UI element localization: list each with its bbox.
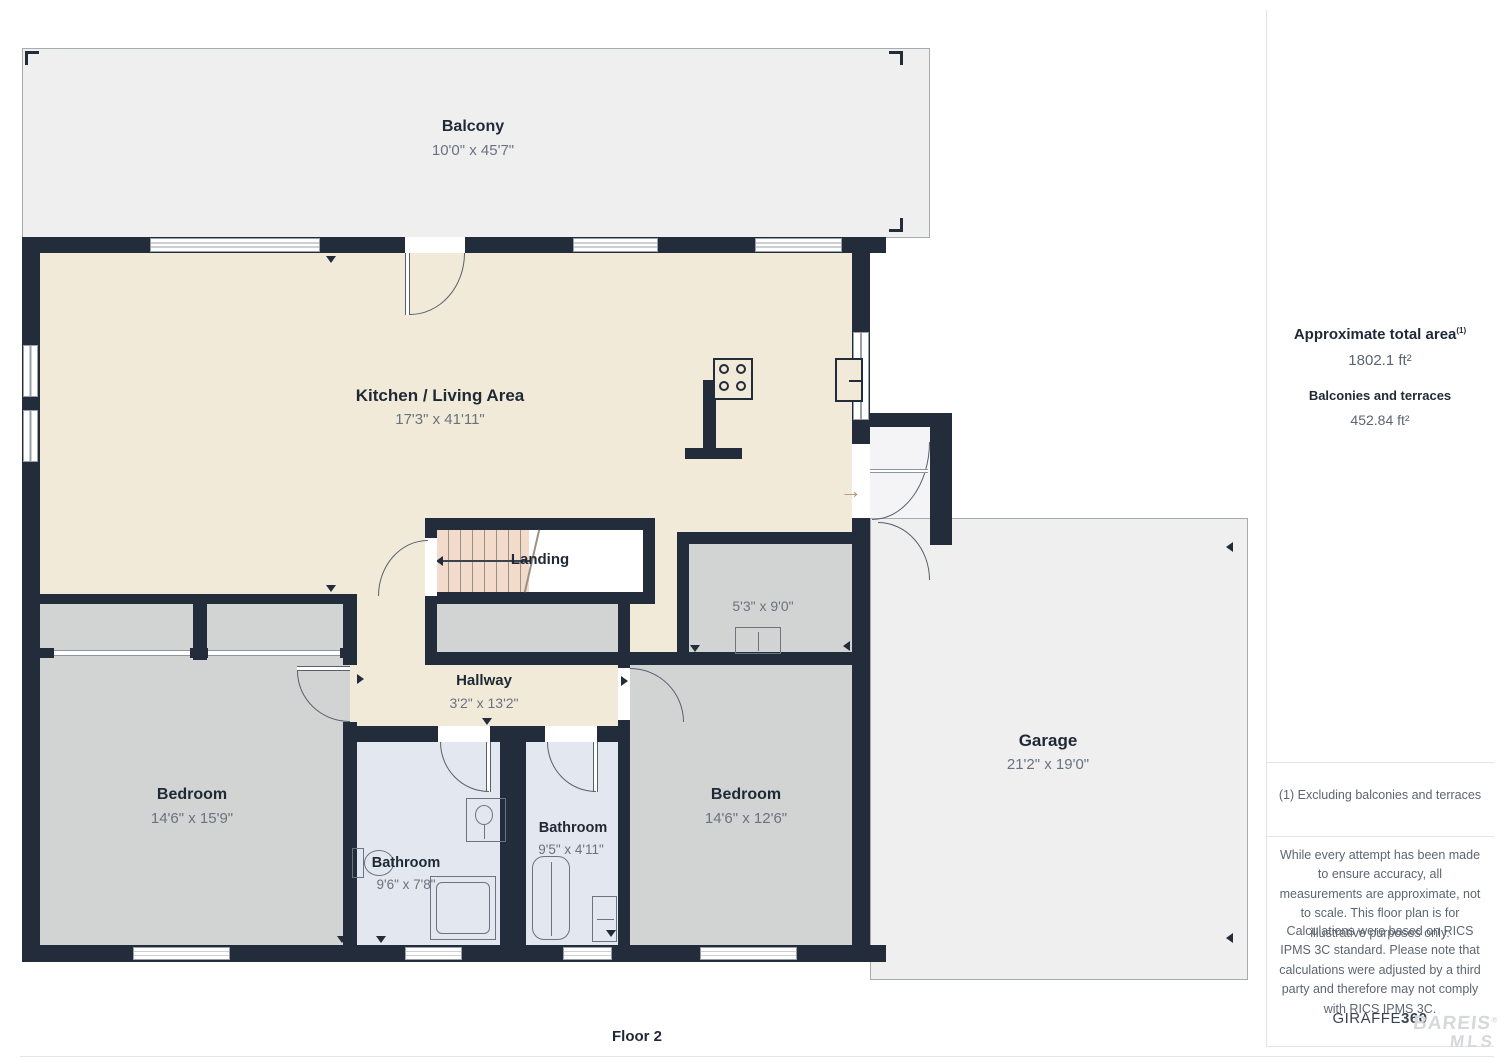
- page-bottom-line: [20, 1056, 1494, 1057]
- room-dims-closet: 5'3" x 9'0": [732, 598, 793, 614]
- entry-threshold-line: [870, 469, 928, 473]
- total-area-value: 1802.1 ft²: [1268, 352, 1492, 369]
- sink-icon: [466, 798, 506, 842]
- wall-closet-mid-left: [425, 604, 437, 652]
- window: [133, 947, 230, 960]
- sliding-door-post: [190, 648, 208, 658]
- room-dims-bedroom-left: 14'6" x 15'9": [151, 810, 233, 827]
- sliding-door-post: [340, 648, 352, 658]
- room-label-garage: Garage: [1019, 731, 1078, 751]
- door-gap-bath-left: [438, 726, 490, 742]
- wall-closet-mid-right: [618, 604, 630, 652]
- fridge-icon: [835, 358, 863, 402]
- marker-triangle: [376, 936, 386, 943]
- total-area-label-text: Approximate total area: [1294, 326, 1457, 343]
- marker-triangle: [1226, 933, 1233, 943]
- floor-plan-page: → Balcony 10'0" x 45'7" Kitchen / Living…: [0, 0, 1500, 1061]
- sidebar-divider: [1266, 762, 1494, 763]
- balcony-corner-mark: [25, 51, 39, 65]
- wall-closet-right-left: [677, 532, 689, 652]
- sliding-door: [48, 650, 193, 656]
- room-dims-balcony: 10'0" x 45'7": [432, 142, 514, 159]
- room-dims-bedroom-right: 14'6" x 12'6": [705, 810, 787, 827]
- sidebar-divider: [1266, 836, 1494, 837]
- room-label-landing: Landing: [511, 551, 569, 568]
- window: [23, 345, 38, 397]
- room-dims-kitchen: 17'3" x 41'11": [395, 411, 485, 428]
- wall-bath-divider: [500, 742, 526, 945]
- wall-right-mid: [852, 430, 870, 444]
- kitchen-notch-b: [630, 604, 677, 652]
- balcony-corner-mark: [889, 218, 903, 232]
- door-gap-kitchen-top: [405, 237, 465, 253]
- balcony-corner-mark: [889, 51, 903, 65]
- entry-arrow-icon: →: [840, 478, 862, 504]
- balconies-value: 452.84 ft²: [1268, 412, 1492, 428]
- room-dims-bathroom-mid: 9'5" x 4'11": [538, 842, 604, 857]
- closet-mid-area: [437, 604, 618, 652]
- sidebar-divider-vertical: [1266, 10, 1267, 1046]
- wall-closet-right-top: [677, 532, 852, 544]
- marker-triangle: [606, 930, 616, 937]
- window: [573, 238, 658, 252]
- giraffe360-logo-text: GIRAFFE: [1332, 1010, 1401, 1027]
- marker-triangle: [326, 585, 336, 592]
- marker-triangle: [357, 674, 364, 684]
- marker-triangle: [482, 718, 492, 725]
- room-label-balcony: Balcony: [442, 118, 504, 136]
- window: [563, 947, 612, 960]
- room-label-hallway: Hallway: [456, 672, 512, 689]
- room-label-kitchen: Kitchen / Living Area: [356, 386, 524, 406]
- stove-icon: [713, 358, 753, 400]
- sliding-door-post: [40, 648, 54, 658]
- total-area-label: Approximate total area(1): [1268, 326, 1492, 343]
- wall-bedroom-right-left-b: [618, 720, 630, 945]
- balconies-label: Balconies and terraces: [1268, 388, 1492, 403]
- toilet-icon: [352, 848, 364, 878]
- wall-right-lower: [852, 518, 870, 962]
- window: [755, 238, 842, 252]
- sliding-door: [207, 650, 345, 656]
- window: [700, 947, 797, 960]
- marker-triangle: [690, 645, 700, 652]
- wall-closet-top: [38, 594, 357, 604]
- total-area-superscript: (1): [1456, 326, 1466, 335]
- door-gap-bath-mid: [545, 726, 597, 742]
- room-label-bathroom-left: Bathroom: [372, 855, 440, 871]
- watermark-line2: MLS: [1406, 1033, 1496, 1050]
- stairs-direction-arrow: [436, 556, 443, 566]
- bathtub-icon: [532, 856, 570, 940]
- footnote: (1) Excluding balconies and terraces: [1272, 788, 1488, 802]
- wall-bedroom-left-right: [343, 722, 357, 945]
- shower-icon: [430, 876, 496, 940]
- watermark-line1: BAREIS: [1412, 1013, 1492, 1034]
- room-label-bathroom-mid: Bathroom: [539, 820, 607, 836]
- corridor-area: [357, 594, 425, 669]
- marker-triangle: [337, 936, 347, 943]
- floor-label: Floor 2: [612, 1028, 662, 1045]
- marker-triangle: [621, 676, 628, 686]
- wall-garage-block: [930, 425, 952, 545]
- disclaimer-calculations: Calculations were based on RICS IPMS 3C …: [1274, 922, 1486, 1019]
- room-label-bedroom-left: Bedroom: [157, 786, 227, 804]
- window: [150, 238, 320, 252]
- kitchen-island: [685, 448, 742, 459]
- room-dims-garage: 21'2" x 19'0": [1007, 756, 1089, 773]
- window: [405, 947, 462, 960]
- room-label-bedroom-right: Bedroom: [711, 786, 781, 804]
- sink-icon: [735, 627, 781, 654]
- bareis-mls-watermark: BAREIS® MLS: [1406, 1014, 1498, 1050]
- marker-triangle: [480, 657, 490, 664]
- watermark-reg-mark: ®: [1491, 1016, 1498, 1025]
- room-dims-bathroom-left: 9'6" x 7'8": [376, 877, 435, 892]
- marker-triangle: [1226, 542, 1233, 552]
- window: [23, 410, 38, 462]
- room-dims-hallway: 3'2" x 13'2": [450, 695, 519, 711]
- marker-triangle: [326, 256, 336, 263]
- marker-triangle: [843, 641, 850, 651]
